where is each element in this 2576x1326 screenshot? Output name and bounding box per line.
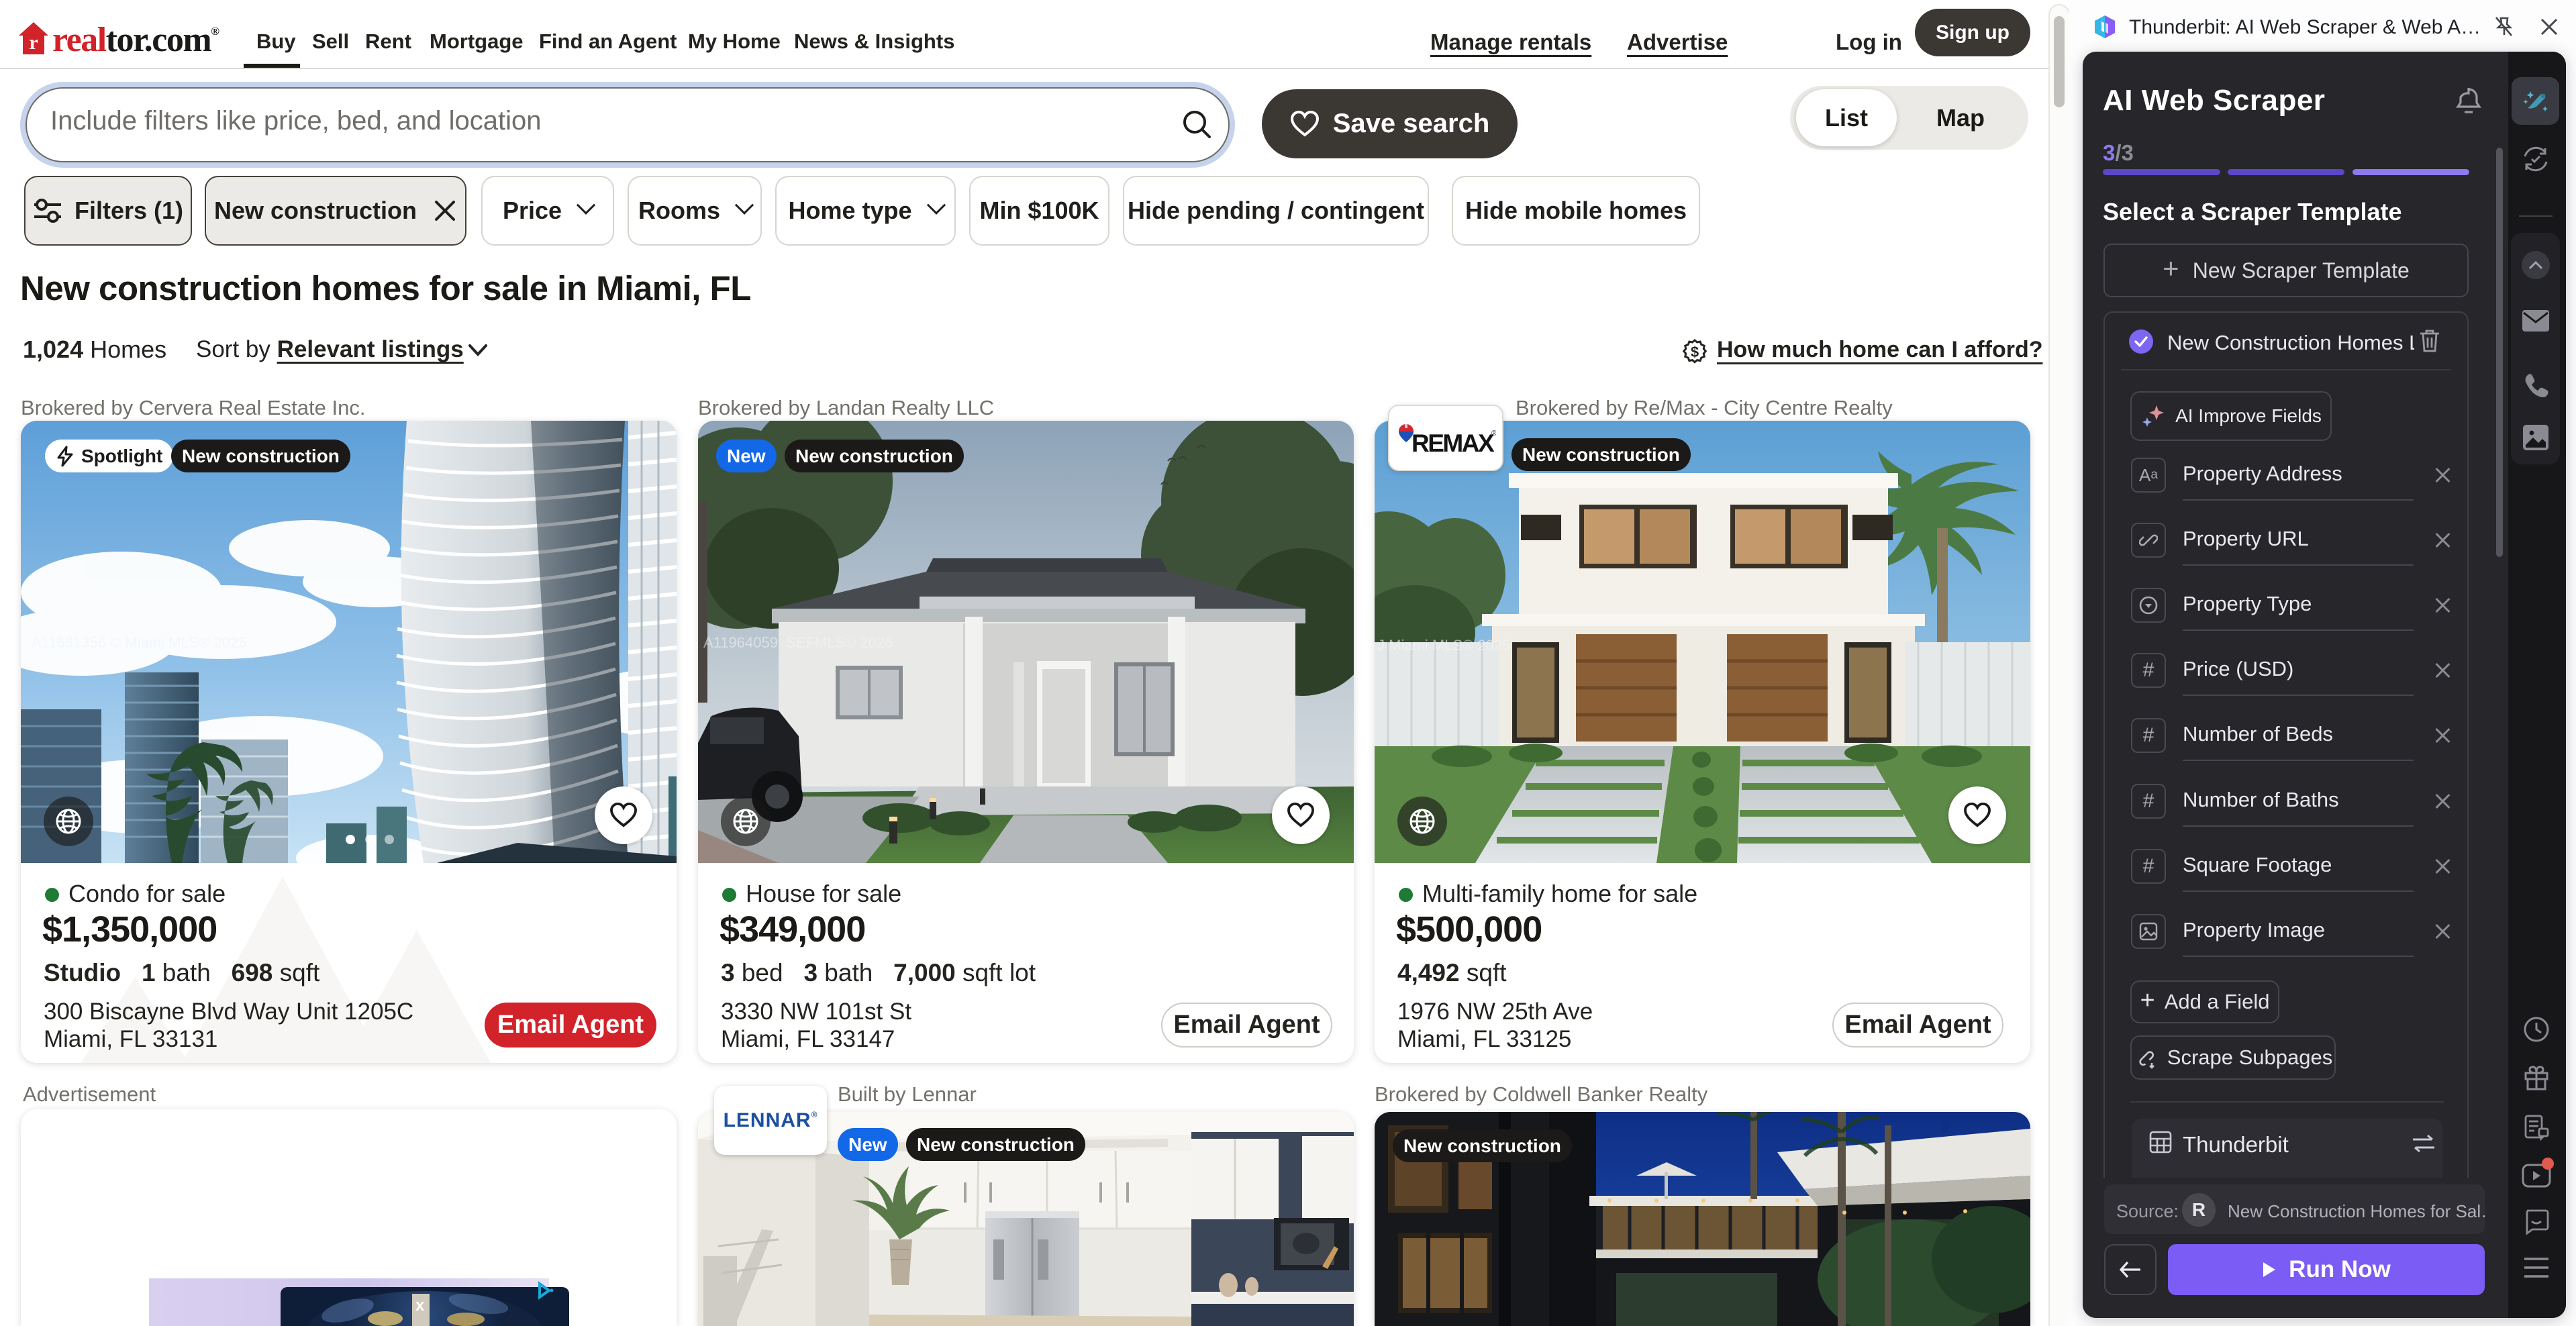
svg-text:$: $ xyxy=(1691,344,1699,360)
svg-text:r: r xyxy=(29,32,38,54)
svg-text:REMAX: REMAX xyxy=(1411,429,1495,457)
svg-text:®: ® xyxy=(1491,429,1496,438)
